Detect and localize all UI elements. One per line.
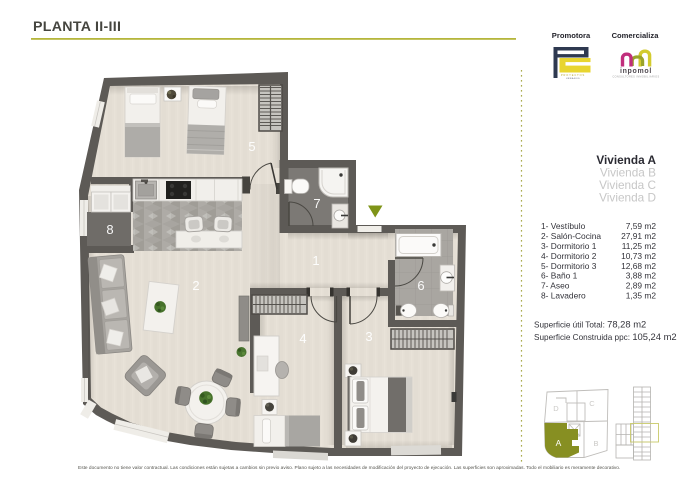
svg-text:5: 5 — [248, 139, 255, 154]
svg-text:4: 4 — [299, 331, 306, 346]
svg-text:URBANOS: URBANOS — [566, 77, 580, 80]
svg-text:4- Dormitorio 2: 4- Dormitorio 2 — [541, 251, 597, 261]
svg-text:PLANTA II-III: PLANTA II-III — [33, 19, 121, 35]
svg-text:10,73 m2: 10,73 m2 — [621, 251, 656, 261]
svg-text:1: 1 — [312, 253, 319, 268]
svg-text:5- Dormitorio 3: 5- Dormitorio 3 — [541, 261, 597, 271]
svg-text:12,68 m2: 12,68 m2 — [621, 261, 656, 271]
svg-text:3: 3 — [365, 329, 372, 344]
svg-text:2- Salón-Cocina: 2- Salón-Cocina — [541, 231, 601, 241]
svg-text:11,25 m2: 11,25 m2 — [622, 241, 657, 251]
svg-text:7: 7 — [313, 196, 320, 211]
svg-text:27,91 m2: 27,91 m2 — [621, 231, 656, 241]
svg-text:B: B — [593, 439, 598, 448]
svg-text:PROYECTOS: PROYECTOS — [561, 73, 585, 77]
svg-text:Promotora: Promotora — [552, 31, 591, 40]
svg-text:8: 8 — [106, 222, 113, 237]
svg-text:Comercializa: Comercializa — [612, 31, 660, 40]
svg-text:6: 6 — [417, 278, 424, 293]
svg-text:1- Vestíbulo: 1- Vestíbulo — [541, 221, 586, 231]
svg-text:8- Lavadero: 8- Lavadero — [541, 291, 586, 301]
svg-text:Superficie útil Total: 78,28 m: Superficie útil Total: 78,28 m2 — [534, 319, 646, 330]
svg-text:3- Dormitorio 1: 3- Dormitorio 1 — [541, 241, 597, 251]
svg-text:2: 2 — [192, 278, 199, 293]
svg-text:7- Aseo: 7- Aseo — [541, 281, 570, 291]
svg-text:D: D — [553, 404, 559, 413]
svg-text:inpomol: inpomol — [620, 68, 652, 75]
svg-text:2,89 m2: 2,89 m2 — [626, 281, 657, 291]
svg-text:Superficie Construida ppc: 105: Superficie Construida ppc: 105,24 m2 — [534, 331, 677, 342]
svg-text:Este documento no tiene valor: Este documento no tiene valor contractua… — [78, 465, 620, 471]
svg-text:1,35 m2: 1,35 m2 — [626, 291, 657, 301]
svg-text:6- Baño 1: 6- Baño 1 — [541, 271, 578, 281]
svg-text:7,59 m2: 7,59 m2 — [626, 221, 657, 231]
svg-text:C: C — [589, 399, 595, 408]
svg-text:3,88 m2: 3,88 m2 — [626, 271, 657, 281]
svg-text:A: A — [556, 438, 562, 448]
svg-text:Vivienda D: Vivienda D — [599, 191, 656, 205]
svg-text:CONSULTORES INMOBILIARIOS: CONSULTORES INMOBILIARIOS — [613, 75, 660, 78]
